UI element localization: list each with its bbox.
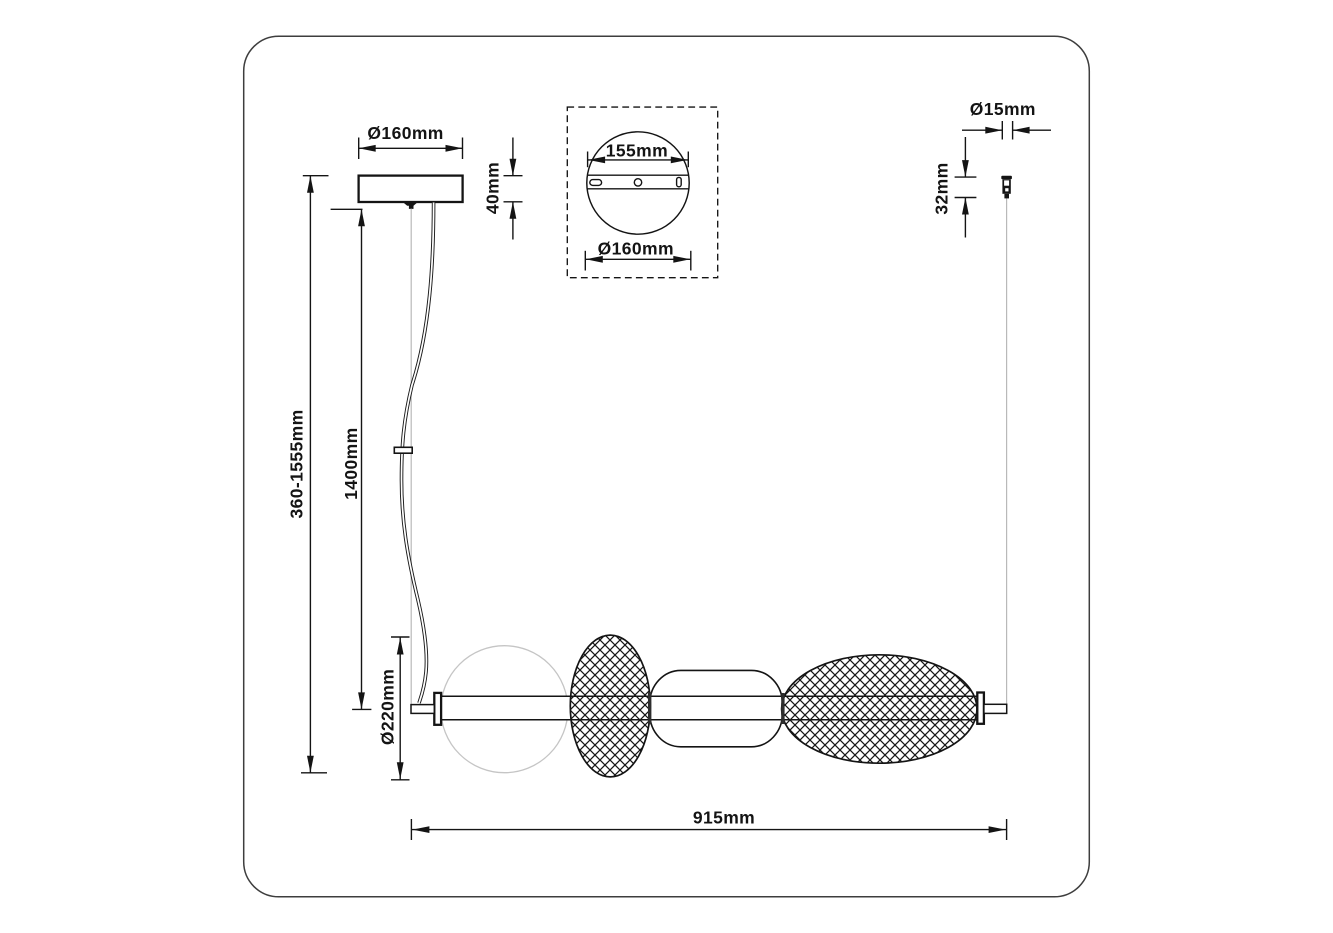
svg-text:155mm: 155mm (606, 141, 668, 161)
svg-text:915mm: 915mm (693, 808, 755, 828)
svg-text:1400mm: 1400mm (341, 427, 361, 499)
svg-text:Ø160mm: Ø160mm (598, 239, 674, 259)
svg-text:Ø160mm: Ø160mm (367, 123, 443, 143)
svg-text:360-1555mm: 360-1555mm (287, 409, 307, 518)
svg-text:Ø220mm: Ø220mm (378, 669, 398, 745)
svg-text:40mm: 40mm (482, 162, 502, 214)
svg-text:Ø15mm: Ø15mm (970, 99, 1036, 119)
svg-text:32mm: 32mm (931, 162, 951, 214)
